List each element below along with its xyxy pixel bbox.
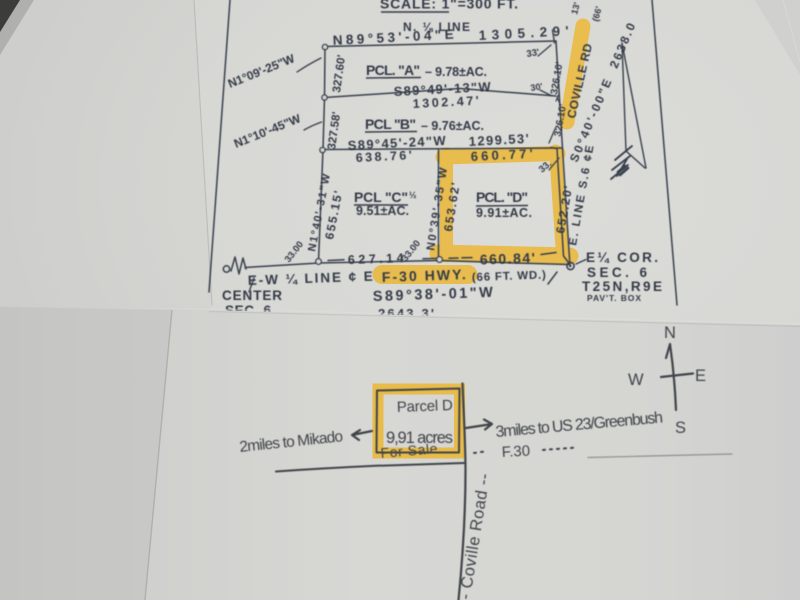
svg-text:PCL "C": PCL "C" (354, 189, 408, 205)
svg-text:PCL "B": PCL "B" (365, 116, 416, 132)
svg-text:– 9.78±AC.: – 9.78±AC. (425, 65, 487, 79)
svg-text:– 9.76±AC.: – 9.76±AC. (421, 119, 484, 133)
svg-text:½: ½ (409, 190, 417, 200)
svg-text:9.91±AC.: 9.91±AC. (476, 206, 532, 220)
svg-text:33': 33' (526, 47, 540, 60)
svg-text:660.84': 660.84' (480, 250, 537, 268)
svg-text:Parcel D: Parcel D (397, 397, 454, 416)
svg-text:9.51±AC.: 9.51±AC. (356, 204, 409, 218)
svg-text:W: W (628, 371, 644, 389)
svg-text:PCL. "D": PCL. "D" (476, 189, 528, 205)
svg-text:E: E (695, 367, 706, 385)
svg-text:PAV'T. BOX: PAV'T. BOX (587, 293, 641, 303)
svg-text:SCALE: 1"=300 FT.: SCALE: 1"=300 FT. (380, 0, 518, 12)
svg-text:E¼ COR.: E¼ COR. (586, 250, 658, 265)
svg-text:F.30: F.30 (501, 443, 530, 461)
svg-text:30': 30' (530, 81, 544, 93)
svg-text:627.14: 627.14 (348, 251, 408, 267)
svg-text:PCL. "A": PCL. "A" (366, 62, 420, 78)
svg-text:N: N (664, 324, 676, 342)
svg-text:CENTER: CENTER (222, 288, 282, 303)
svg-text:T25N,R9E: T25N,R9E (582, 279, 662, 294)
svg-text:S: S (675, 419, 686, 437)
